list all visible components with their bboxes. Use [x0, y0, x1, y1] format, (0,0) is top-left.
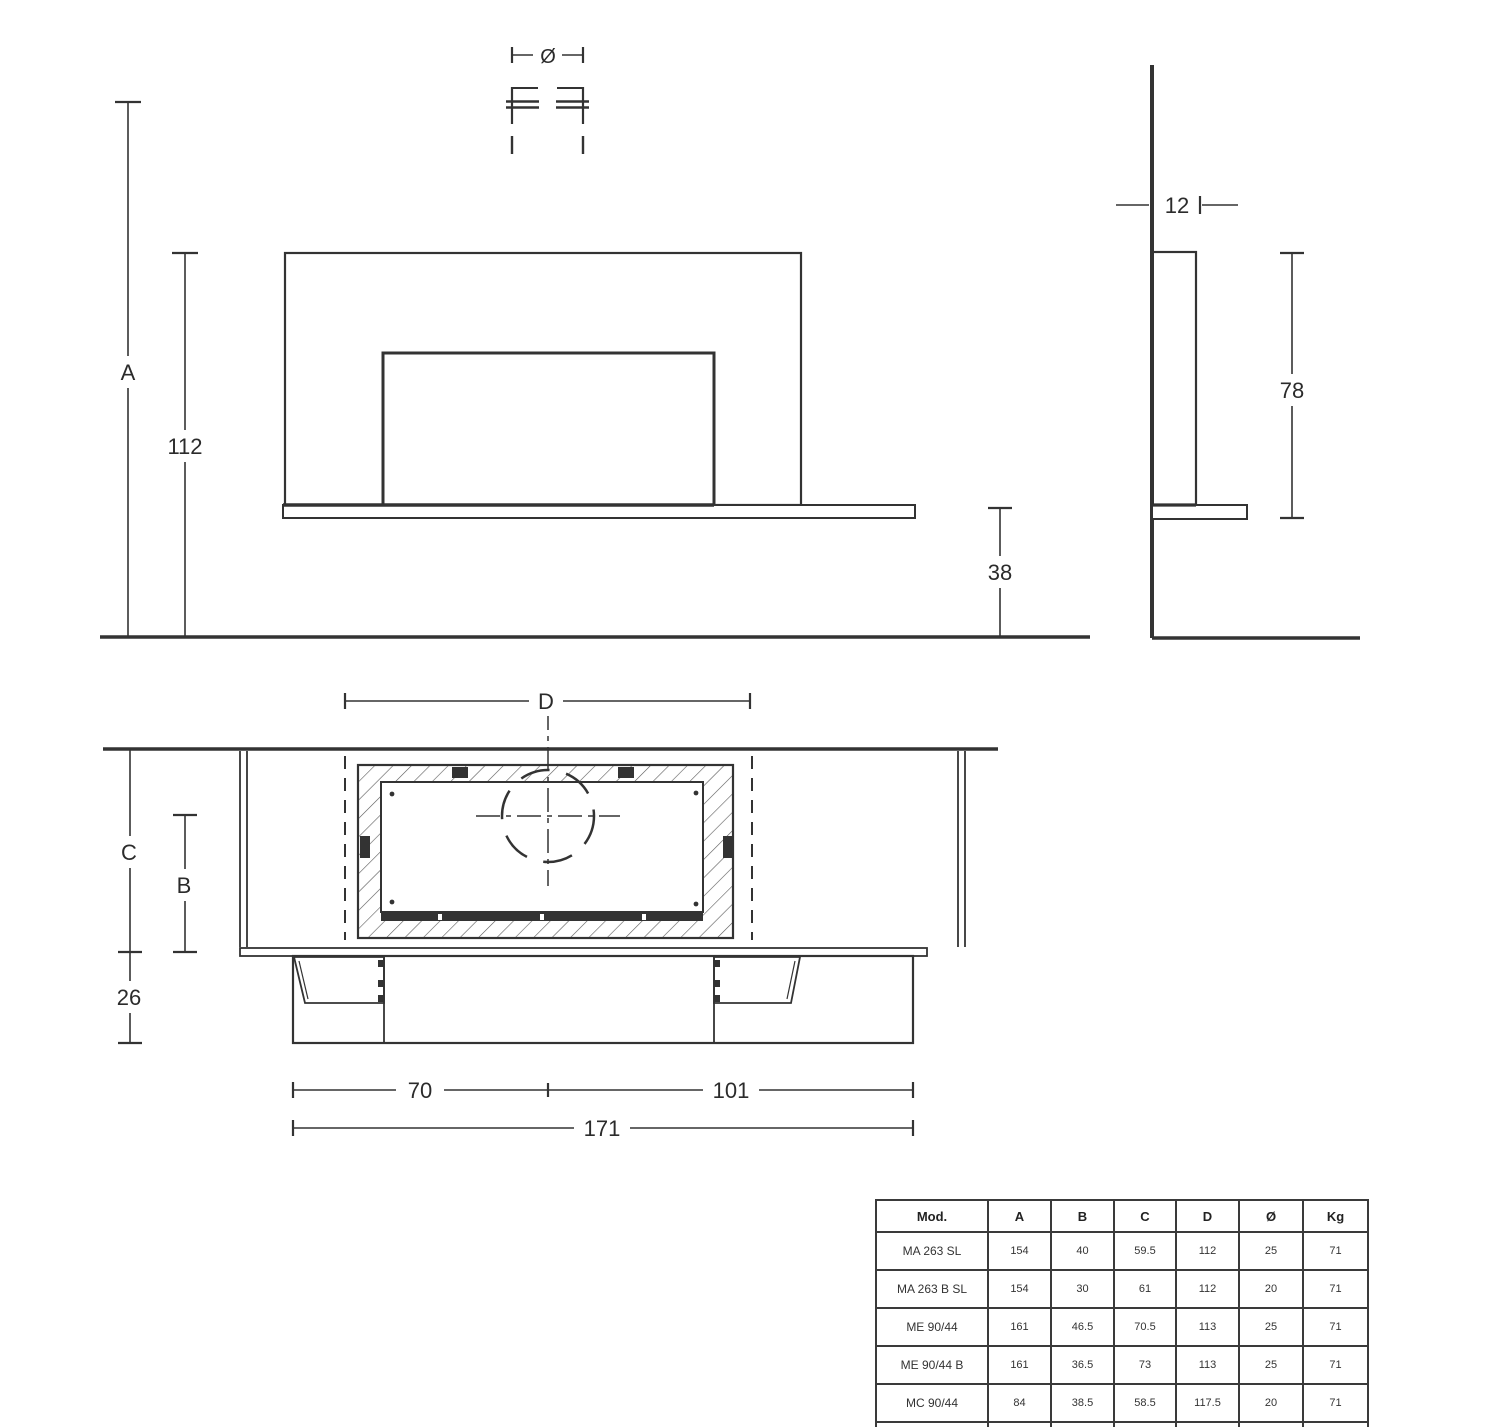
dim-label-26: 26 [106, 981, 154, 1013]
side-view [1116, 65, 1360, 638]
dim-label-diameter: Ø [535, 42, 561, 68]
plan-firebox [358, 765, 733, 938]
svg-text:B: B [177, 873, 192, 898]
spec-column-header-3: C [1114, 1200, 1176, 1232]
front-view [100, 47, 1090, 637]
spec-table-cell: 71 [1303, 1384, 1368, 1422]
spec-table-cell: 32.5 [1051, 1422, 1114, 1427]
dim-label-38: 38 [976, 556, 1024, 588]
spec-table-cell: 71 [1303, 1346, 1368, 1384]
spec-table-cell: 71 [1303, 1308, 1368, 1346]
spec-table-row: ME 90/4416146.570.51132571 [876, 1308, 1368, 1346]
svg-text:70: 70 [408, 1078, 432, 1103]
front-shelf [283, 505, 915, 518]
spec-table-header: Mod.ABCDØKg [876, 1200, 1368, 1232]
spec-table-cell: 25 [1239, 1232, 1303, 1270]
dim-label-c: C [112, 836, 146, 868]
spec-table-cell: 102 [1176, 1422, 1239, 1427]
plan-base [293, 956, 913, 1043]
svg-text:Ø: Ø [540, 46, 556, 68]
spec-table-cell: 73 [1114, 1346, 1176, 1384]
spec-table-cell: MA 263 SL [876, 1232, 988, 1270]
spec-table-cell: 59.5 [1114, 1232, 1176, 1270]
spec-table-cell: 154 [988, 1232, 1051, 1270]
plan-right-bracket [714, 957, 800, 1003]
spec-table-cell: 71 [1303, 1270, 1368, 1308]
svg-text:26: 26 [117, 985, 141, 1010]
spec-column-header-5: Ø [1239, 1200, 1303, 1232]
dim-label-a: A [112, 356, 144, 388]
spec-table-cell: 20 [1239, 1384, 1303, 1422]
spec-table-cell: 161 [988, 1308, 1051, 1346]
spec-table-cell: IG 90 [876, 1422, 988, 1427]
spec-table-row: IG 9091.532.5501021571 [876, 1422, 1368, 1427]
svg-text:171: 171 [584, 1116, 621, 1141]
spec-column-header-2: B [1051, 1200, 1114, 1232]
spec-table-cell: 25 [1239, 1346, 1303, 1384]
model-spec-table: Mod.ABCDØKg MA 263 SL1544059.51122571MA … [875, 1199, 1369, 1427]
spec-table-row: MA 263 B SL15430611122071 [876, 1270, 1368, 1308]
spec-column-header-0: Mod. [876, 1200, 988, 1232]
spec-table-cell: 36.5 [1051, 1346, 1114, 1384]
side-panel-outline [1152, 252, 1196, 505]
svg-text:38: 38 [988, 560, 1012, 585]
spec-table-cell: 30 [1051, 1270, 1114, 1308]
spec-table-cell: 46.5 [1051, 1308, 1114, 1346]
dim-label-b: B [168, 869, 202, 901]
dim-label-d: D [529, 686, 563, 716]
spec-table-cell: 154 [988, 1270, 1051, 1308]
spec-table-cell: 113 [1176, 1308, 1239, 1346]
spec-table-cell: 71 [1303, 1422, 1368, 1427]
spec-column-header-6: Kg [1303, 1200, 1368, 1232]
spec-table-cell: 38.5 [1051, 1384, 1114, 1422]
dim-label-101: 101 [703, 1074, 759, 1106]
spec-table-cell: 117.5 [1176, 1384, 1239, 1422]
svg-text:112: 112 [167, 434, 202, 459]
spec-table-row: MA 263 SL1544059.51122571 [876, 1232, 1368, 1270]
svg-text:C: C [121, 840, 137, 865]
svg-text:101: 101 [713, 1078, 750, 1103]
flue-collar-icon [506, 87, 589, 154]
spec-column-header-1: A [988, 1200, 1051, 1232]
spec-table-cell: MC 90/44 [876, 1384, 988, 1422]
spec-table-cell: 112 [1176, 1270, 1239, 1308]
spec-table-cell: 25 [1239, 1308, 1303, 1346]
plan-left-panel [240, 751, 247, 947]
plan-shelf-band [240, 948, 927, 956]
front-hood-outline [285, 253, 801, 505]
spec-table-cell: MA 263 B SL [876, 1270, 988, 1308]
plan-left-bracket [294, 957, 384, 1003]
centerlines [476, 706, 620, 886]
spec-table-cell: 161 [988, 1346, 1051, 1384]
spec-column-header-4: D [1176, 1200, 1239, 1232]
dim-label-78: 78 [1268, 374, 1316, 406]
spec-table-cell: 84 [988, 1384, 1051, 1422]
svg-text:A: A [121, 360, 136, 385]
spec-table-row: MC 90/448438.558.5117.52071 [876, 1384, 1368, 1422]
spec-table-cell: 71 [1303, 1232, 1368, 1270]
spec-table-cell: 70.5 [1114, 1308, 1176, 1346]
spec-table-cell: 40 [1051, 1232, 1114, 1270]
spec-table-cell: 20 [1239, 1270, 1303, 1308]
dim-label-171: 171 [574, 1112, 630, 1144]
spec-table-cell: ME 90/44 B [876, 1346, 988, 1384]
dim-label-12: 12 [1158, 190, 1196, 220]
spec-table-cell: 91.5 [988, 1422, 1051, 1427]
spec-table-cell: 61 [1114, 1270, 1176, 1308]
spec-table-cell: 50 [1114, 1422, 1176, 1427]
svg-text:D: D [538, 689, 554, 714]
spec-table-cell: ME 90/44 [876, 1308, 988, 1346]
dim-label-112: 112 [161, 430, 209, 462]
plan-right-panel [958, 751, 965, 947]
dimension-70-101 [293, 1082, 913, 1098]
dim-label-70: 70 [396, 1074, 444, 1106]
side-shelf [1152, 505, 1247, 519]
dimension-labels: A 112 Ø 38 12 78 D C [106, 42, 1316, 1144]
spec-table-row: ME 90/44 B16136.5731132571 [876, 1346, 1368, 1384]
spec-table-cell: 15 [1239, 1422, 1303, 1427]
svg-text:12: 12 [1165, 193, 1189, 218]
spec-table-cell: 58.5 [1114, 1384, 1176, 1422]
spec-table-cell: 113 [1176, 1346, 1239, 1384]
spec-table-cell: 112 [1176, 1232, 1239, 1270]
plan-view [103, 693, 998, 1136]
front-firebox-outline [383, 353, 714, 505]
svg-text:78: 78 [1280, 378, 1304, 403]
technical-drawing-page: A 112 Ø 38 12 78 D C [0, 0, 1500, 1427]
